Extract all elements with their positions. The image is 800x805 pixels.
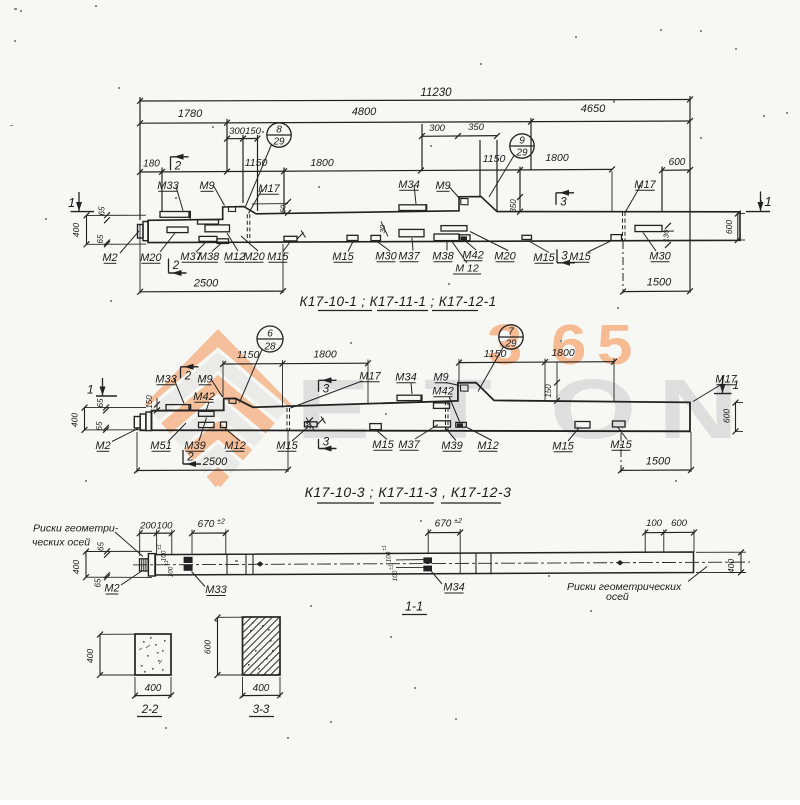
svg-text:350: 350	[509, 199, 518, 213]
svg-text:М2: М2	[104, 583, 119, 595]
svg-text:3: 3	[560, 197, 567, 209]
svg-text:5: 5	[597, 312, 633, 376]
svg-text:М15: М15	[332, 251, 354, 263]
svg-text:400: 400	[726, 559, 736, 573]
svg-text:М9: М9	[199, 180, 214, 192]
svg-text:400: 400	[253, 683, 270, 694]
svg-text:М30: М30	[375, 251, 397, 263]
svg-text:М51: М51	[150, 440, 171, 452]
svg-text:2: 2	[172, 260, 180, 272]
svg-text:1150: 1150	[483, 153, 506, 165]
svg-text:М12: М12	[477, 440, 498, 452]
svg-text:65: 65	[98, 206, 107, 215]
svg-text:±1: ±1	[389, 564, 395, 570]
svg-text:М38: М38	[432, 251, 454, 263]
svg-text:1: 1	[765, 194, 772, 209]
svg-text:М33: М33	[157, 180, 179, 192]
svg-text:М42: М42	[193, 391, 214, 403]
svg-text:М20: М20	[140, 252, 162, 264]
svg-text:2500: 2500	[202, 456, 228, 468]
svg-text:65: 65	[97, 542, 106, 551]
svg-text:М17: М17	[715, 374, 737, 386]
svg-text:М34: М34	[398, 179, 419, 191]
svg-text:М17: М17	[634, 179, 656, 191]
svg-text:1150: 1150	[484, 348, 507, 360]
svg-text:200: 200	[139, 521, 157, 532]
svg-text:К17-10-1 ; К17-11-1 ; К17-12-1: К17-10-1 ; К17-11-1 ; К17-12-1	[300, 294, 497, 309]
svg-text:М12: М12	[224, 440, 245, 452]
svg-text:М2: М2	[95, 440, 110, 452]
svg-text:4650: 4650	[581, 103, 606, 115]
svg-text:6: 6	[551, 312, 587, 376]
svg-text:±2: ±2	[454, 518, 462, 525]
svg-text:М42: М42	[462, 250, 483, 262]
svg-text:ческих осей: ческих осей	[32, 537, 90, 549]
svg-text:100: 100	[392, 570, 399, 581]
svg-text:300: 300	[429, 123, 446, 134]
svg-text:65: 65	[94, 578, 103, 587]
svg-text:М37: М37	[398, 251, 420, 263]
svg-text:М12: М12	[224, 251, 245, 263]
svg-text:6: 6	[267, 329, 273, 340]
svg-text:1-1: 1-1	[405, 600, 423, 614]
svg-text:1800: 1800	[545, 152, 569, 164]
svg-text:100: 100	[157, 521, 174, 532]
svg-text:670: 670	[198, 519, 215, 530]
svg-text:28: 28	[263, 342, 276, 353]
svg-text:3: 3	[561, 251, 568, 263]
svg-text:Риски геометри-: Риски геометри-	[33, 523, 119, 535]
svg-text:2: 2	[186, 452, 194, 464]
svg-text:8: 8	[276, 125, 282, 136]
svg-text:М34: М34	[395, 372, 416, 384]
svg-text:М38: М38	[198, 251, 220, 263]
svg-text:М33: М33	[205, 584, 227, 596]
svg-text:150: 150	[145, 395, 154, 409]
svg-text:М17: М17	[359, 371, 381, 383]
svg-text:29: 29	[272, 137, 285, 148]
svg-text:3: 3	[323, 437, 330, 449]
svg-text:29: 29	[515, 148, 528, 159]
svg-text:±1: ±1	[164, 560, 170, 566]
svg-text:осей: осей	[606, 591, 629, 603]
svg-text:2-2: 2-2	[141, 704, 159, 716]
svg-text:3-3: 3-3	[253, 704, 270, 716]
svg-text:180: 180	[143, 159, 160, 170]
svg-text:400: 400	[71, 223, 81, 237]
svg-text:50: 50	[279, 204, 288, 213]
svg-text:М15: М15	[267, 251, 289, 263]
svg-text:600: 600	[203, 640, 213, 654]
svg-text:29: 29	[504, 339, 517, 350]
svg-text:М15: М15	[276, 440, 298, 452]
svg-text:600: 600	[671, 518, 688, 529]
svg-text:М37: М37	[398, 439, 420, 451]
svg-text:150: 150	[544, 384, 553, 398]
svg-text:М30: М30	[649, 251, 671, 263]
svg-text:М9: М9	[197, 374, 212, 386]
svg-text:±1: ±1	[382, 545, 388, 551]
svg-text:М15: М15	[610, 439, 632, 451]
svg-text:М15: М15	[552, 441, 574, 453]
svg-text:±2: ±2	[217, 519, 225, 526]
svg-text:2: 2	[184, 371, 192, 383]
svg-text:М20: М20	[243, 251, 265, 263]
svg-text:11230: 11230	[420, 87, 452, 99]
svg-text:2500: 2500	[193, 278, 219, 290]
svg-text:600: 600	[724, 220, 734, 234]
svg-text:М34: М34	[443, 582, 464, 594]
svg-text:М42: М42	[432, 386, 453, 398]
svg-text:1500: 1500	[646, 456, 671, 468]
svg-text:400: 400	[85, 649, 95, 663]
svg-text:1800: 1800	[313, 349, 337, 361]
svg-text:350: 350	[468, 122, 485, 133]
svg-text:1800: 1800	[310, 157, 334, 169]
svg-text:100: 100	[161, 550, 168, 561]
svg-text:1: 1	[87, 383, 94, 397]
svg-text:1500: 1500	[647, 277, 672, 289]
svg-text:2: 2	[174, 161, 182, 173]
svg-text:600: 600	[669, 157, 686, 168]
svg-text:400: 400	[70, 413, 80, 427]
svg-text:М9: М9	[435, 180, 450, 192]
svg-text:М9: М9	[433, 372, 448, 384]
svg-text:670: 670	[435, 519, 452, 530]
svg-text:М15: М15	[569, 251, 591, 263]
svg-text:400: 400	[71, 560, 81, 574]
svg-text:М15: М15	[372, 439, 394, 451]
svg-text:1: 1	[68, 195, 75, 210]
svg-text:65: 65	[95, 421, 104, 430]
svg-text:150: 150	[245, 126, 262, 137]
svg-text:М20: М20	[494, 251, 516, 263]
svg-text:1800: 1800	[551, 347, 575, 359]
svg-text:1780: 1780	[178, 108, 203, 120]
svg-text:400: 400	[145, 683, 162, 694]
svg-text:9: 9	[519, 136, 525, 147]
svg-text:М15: М15	[533, 252, 555, 264]
svg-text:600: 600	[722, 409, 732, 423]
svg-text:4800: 4800	[352, 106, 377, 118]
svg-text:М39: М39	[441, 440, 462, 452]
svg-text:М2: М2	[102, 252, 117, 264]
svg-text:М17: М17	[258, 183, 280, 195]
svg-text:К17-10-3 ; К17-11-3 , К17-12: К17-10-3 ; К17-11-3 , К17-12-3	[305, 484, 512, 500]
svg-text:М39: М39	[184, 440, 205, 452]
svg-text:100: 100	[168, 566, 175, 577]
svg-text:65: 65	[96, 398, 105, 407]
svg-text:1150: 1150	[237, 349, 260, 361]
svg-text:±1: ±1	[157, 544, 163, 550]
svg-text:7: 7	[508, 327, 514, 338]
svg-text:65: 65	[96, 234, 105, 243]
svg-text:100: 100	[386, 551, 393, 562]
svg-text:М 12: М 12	[455, 263, 479, 275]
svg-text:100: 100	[646, 518, 663, 529]
